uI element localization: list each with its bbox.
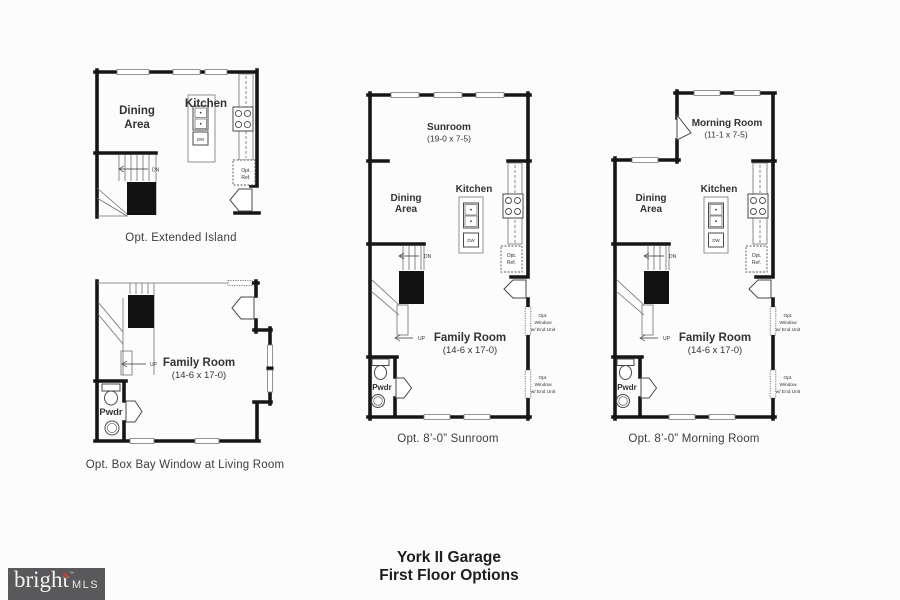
toilet-bowl — [105, 391, 118, 405]
family-room-label: Family Room — [679, 332, 751, 344]
brightmls-logo-tm: ™ — [69, 571, 74, 577]
floorplan-morning-room: DW Opt. Ref. DN UP — [606, 86, 812, 426]
toilet — [102, 384, 120, 391]
family-room-dim: (14-6 x 17-0) — [443, 345, 497, 356]
powder-room: Pwdr — [372, 359, 412, 408]
family-room-dim: (14-6 x 17-0) — [688, 345, 742, 356]
brightmls-logo: bright ™ MLS — [8, 568, 105, 600]
floorplan-box-bay-window: UP Pwdr Family Room (14-6 x 17-0) — [90, 276, 285, 448]
toilet-bowl — [620, 366, 632, 380]
caption-morning-room: Opt. 8’-0” Morning Room — [594, 433, 794, 445]
kitchen-island: DW — [704, 197, 728, 253]
family-room-dim: (14-6 x 17-0) — [172, 370, 226, 381]
toilet-bowl — [375, 366, 387, 380]
up-label: UP — [150, 362, 158, 368]
opt-refrigerator: Opt. Ref. — [233, 160, 255, 185]
up-label: UP — [663, 336, 671, 342]
note-line: Window — [779, 382, 797, 388]
range — [233, 107, 253, 131]
opt-ref-label: Opt. — [752, 253, 761, 259]
door — [232, 297, 254, 319]
family-room-label: Family Room — [163, 357, 235, 369]
kitchen-label: Kitchen — [456, 184, 493, 195]
note-line: w/ End Unit — [531, 389, 556, 395]
pwdr-label: Pwdr — [99, 407, 123, 418]
sheet-title: York II Garage First Floor Options — [324, 549, 574, 584]
door — [749, 280, 771, 298]
brightmls-logo-brand: bright — [14, 567, 69, 593]
powder-room: Pwdr — [617, 359, 657, 408]
sheet-title-line1: York II Garage — [324, 549, 574, 567]
morning-room-dim: (11-1 x 7-5) — [704, 130, 747, 140]
caption-extended-island: Opt. Extended Island — [81, 232, 281, 244]
sunroom-label: Sunroom — [427, 122, 471, 133]
door — [641, 378, 657, 398]
door — [126, 401, 142, 422]
family-room-label: Family Room — [434, 332, 506, 344]
opt-ref-label: Ref. — [241, 175, 250, 181]
stairs-down: DN — [97, 155, 160, 216]
kitchen-label: Kitchen — [701, 184, 738, 195]
note-line: Window — [534, 320, 552, 326]
opt-refrigerator: Opt. Ref. — [501, 246, 522, 272]
stairs-up: UP — [98, 283, 158, 375]
opt-window-note: Opt. Window w/ End Unit Opt. Window w/ E… — [776, 313, 801, 395]
stairs: DN UP — [371, 246, 432, 342]
dining-area-label: Area — [395, 204, 418, 215]
dw-label: DW — [467, 238, 475, 243]
dining-area-label: Area — [124, 119, 150, 131]
opt-ref-label: Ref. — [752, 260, 761, 266]
dw-label: DW — [197, 137, 205, 142]
brightmls-logo-dot-icon — [63, 573, 68, 578]
opt-window-note: Opt. Window w/ End Unit Opt. Window w/ E… — [531, 313, 556, 395]
note-line: Opt. — [783, 375, 792, 381]
dn-label: DN — [424, 254, 432, 260]
dining-area-label: Dining — [635, 193, 666, 204]
sunroom-dim: (19-0 x 7-5) — [427, 134, 471, 144]
dining-area-label: Area — [640, 204, 663, 215]
note-line: w/ End Unit — [531, 327, 556, 333]
pwdr-label: Pwdr — [372, 383, 392, 392]
pwdr-label: Pwdr — [617, 383, 637, 392]
dining-area-label: Dining — [119, 105, 155, 117]
note-line: Opt. — [538, 313, 547, 319]
toilet — [617, 359, 634, 366]
door — [396, 378, 412, 398]
opt-ref-label: Opt. — [241, 168, 250, 174]
dn-label: DN — [669, 254, 677, 260]
kitchen-label: Kitchen — [185, 98, 227, 110]
floorplan-sheet: DW Opt. Ref. DN Dining Area K — [0, 0, 900, 600]
range — [748, 194, 768, 218]
opt-refrigerator: Opt. Ref. — [746, 246, 767, 272]
note-line: Opt. — [783, 313, 792, 319]
dw-label: DW — [712, 238, 720, 243]
range — [503, 194, 523, 218]
stairs: DN UP — [616, 246, 677, 342]
floorplan-extended-island: DW Opt. Ref. DN Dining Area K — [85, 60, 270, 225]
brightmls-logo-mls: MLS — [72, 579, 99, 591]
morning-room-label: Morning Room — [692, 118, 763, 129]
bay-window — [267, 345, 274, 392]
kitchen-island: DW — [459, 197, 483, 253]
powder-room: Pwdr — [99, 384, 142, 435]
note-line: Window — [534, 382, 552, 388]
opt-ref-label: Opt. — [507, 253, 516, 259]
note-line: Opt. — [538, 375, 547, 381]
caption-sunroom: Opt. 8’-0” Sunroom — [348, 433, 548, 445]
note-line: w/ End Unit — [776, 327, 801, 333]
toilet — [372, 359, 389, 366]
door — [677, 115, 691, 140]
door — [230, 189, 252, 211]
door — [504, 280, 526, 298]
sheet-title-line2: First Floor Options — [324, 567, 574, 585]
note-line: w/ End Unit — [776, 389, 801, 395]
dining-area-label: Dining — [390, 193, 421, 204]
floorplan-sunroom: DW Opt. Ref. DN UP — [362, 86, 568, 426]
dn-label: DN — [152, 168, 160, 174]
note-line: Window — [779, 320, 797, 326]
opt-ref-label: Ref. — [507, 260, 516, 266]
caption-box-bay-window: Opt. Box Bay Window at Living Room — [60, 459, 310, 471]
up-label: UP — [418, 336, 426, 342]
